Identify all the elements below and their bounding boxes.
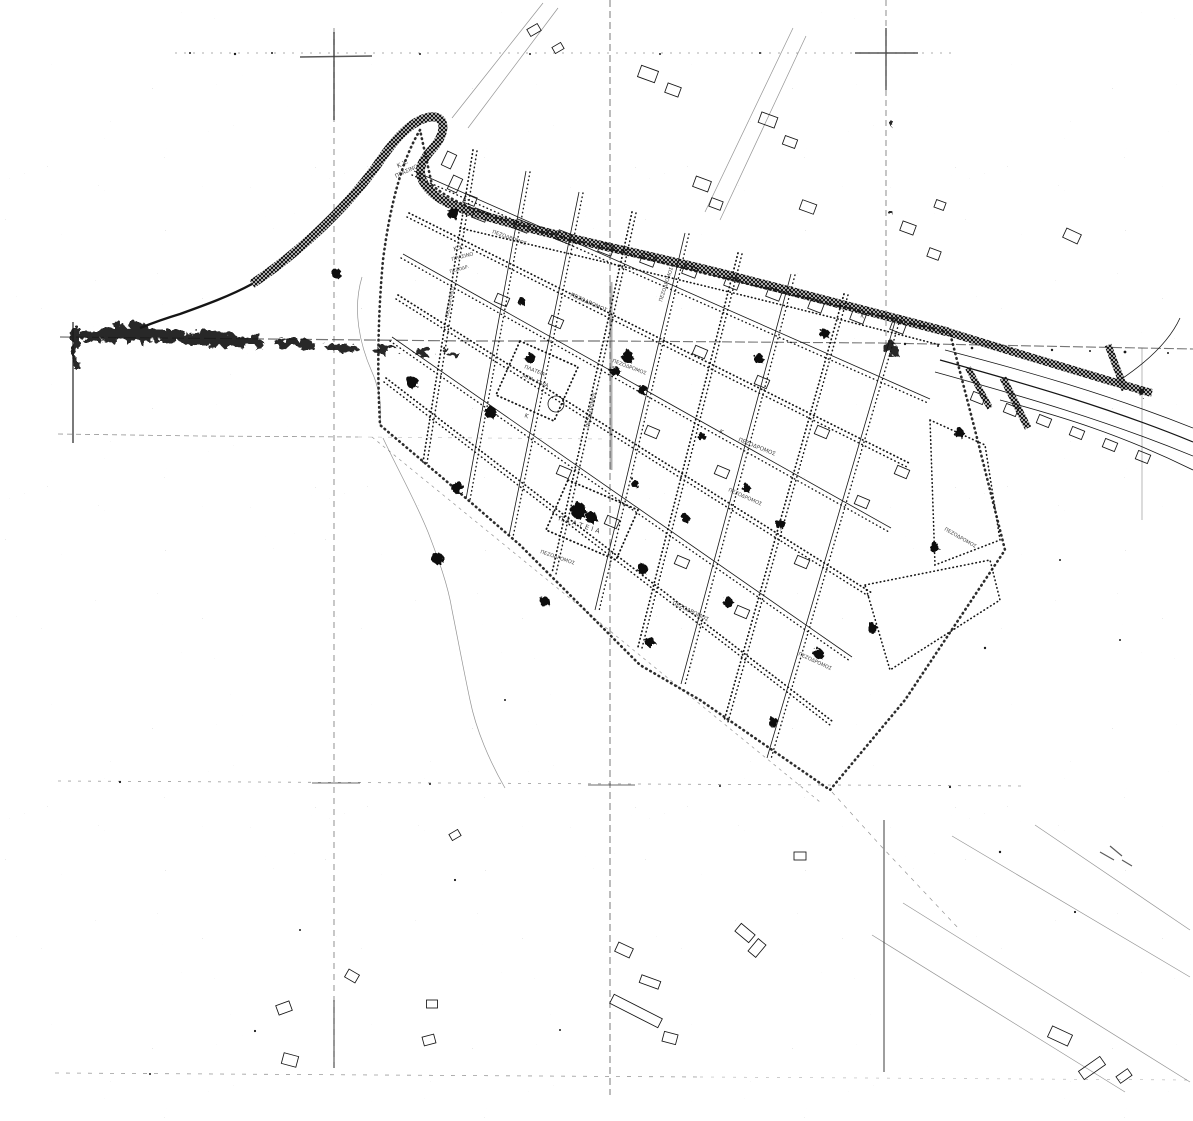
- tree-blob: [774, 518, 784, 528]
- noise-dot: [971, 347, 974, 350]
- smudge-blob: [227, 332, 263, 344]
- tree-blob: [812, 647, 822, 657]
- noise-dot: [149, 1073, 151, 1075]
- tree-blob: [330, 267, 340, 277]
- noise-dot: [949, 786, 951, 788]
- noise-dot: [984, 647, 986, 649]
- tree-blob: [680, 513, 688, 521]
- noise-dot: [659, 53, 661, 55]
- tree-blob: [636, 383, 646, 393]
- noise-dot: [504, 699, 506, 701]
- tree-blob: [450, 480, 462, 492]
- crosshair-top-left: [300, 56, 372, 57]
- tree-blob: [524, 352, 534, 362]
- smudge-bar: [69, 324, 76, 364]
- tree-blob: [722, 596, 732, 606]
- noise-dot: [119, 781, 121, 783]
- noise-dot: [1051, 349, 1053, 351]
- tree-blob: [767, 716, 777, 726]
- map-canvas: Κ.Χ. ΠΡΑΣΙΝΟ Κ.Χ. ΠΡΑΣΙΝΟ ΠΕΖΟΔΡ. ΠΛΑΤΕΙ…: [0, 0, 1193, 1121]
- noise-dot: [189, 52, 191, 54]
- scan-noise-layer: [0, 0, 1193, 1121]
- smudge-dot: [886, 118, 891, 123]
- tree-blob: [538, 595, 548, 605]
- tree-blob: [483, 405, 495, 417]
- noise-dot: [1074, 911, 1076, 913]
- smudge-dot: [886, 208, 890, 212]
- noise-dot: [271, 52, 273, 54]
- tree-blob: [866, 622, 876, 632]
- noise-dot: [1119, 639, 1121, 641]
- noise-dot: [429, 783, 431, 785]
- tree-blob: [741, 483, 749, 491]
- tree-blob: [928, 541, 938, 551]
- noise-dot: [559, 1029, 561, 1031]
- tree-blob: [516, 296, 524, 304]
- smudge-blob: [322, 340, 354, 348]
- tree-blob: [620, 349, 632, 361]
- noise-dot: [254, 1030, 256, 1032]
- tree-blob: [430, 551, 442, 563]
- noise-dot: [1009, 348, 1011, 350]
- tree-blob: [584, 510, 596, 522]
- tree-blob: [405, 375, 417, 387]
- noise-dot: [1167, 352, 1169, 354]
- noise-dot: [234, 53, 236, 55]
- tree-blob: [446, 206, 458, 218]
- scan-noise-field: [0, 0, 1193, 1121]
- tree-blob: [609, 365, 619, 375]
- scanned-map-sheet: Κ.Χ. ΠΡΑΣΙΝΟ Κ.Χ. ΠΡΑΣΙΝΟ ΠΕΖΟΔΡ. ΠΛΑΤΕΙ…: [0, 0, 1193, 1121]
- smudge-blob: [272, 336, 312, 346]
- noise-dot: [937, 345, 939, 347]
- smudge-blob: [410, 346, 430, 352]
- tree-blob: [818, 327, 828, 337]
- smudge-blob: [369, 344, 395, 351]
- tree-blob: [629, 478, 637, 486]
- tree-blob: [569, 501, 585, 517]
- tree-blob: [696, 431, 704, 439]
- tree-blob: [752, 352, 762, 362]
- noise-dot: [529, 53, 531, 55]
- noise-dot: [999, 851, 1001, 853]
- noise-dot: [1089, 350, 1091, 352]
- noise-dot: [1124, 351, 1127, 354]
- noise-dot: [454, 879, 456, 881]
- tree-blob: [644, 636, 654, 646]
- noise-dot: [904, 343, 906, 345]
- tree-blob: [953, 427, 963, 437]
- noise-dot: [299, 929, 301, 931]
- noise-dot: [419, 53, 421, 55]
- noise-dot: [719, 785, 721, 787]
- noise-dot: [1059, 559, 1061, 561]
- noise-dot: [759, 52, 761, 54]
- tree-blob: [636, 562, 646, 572]
